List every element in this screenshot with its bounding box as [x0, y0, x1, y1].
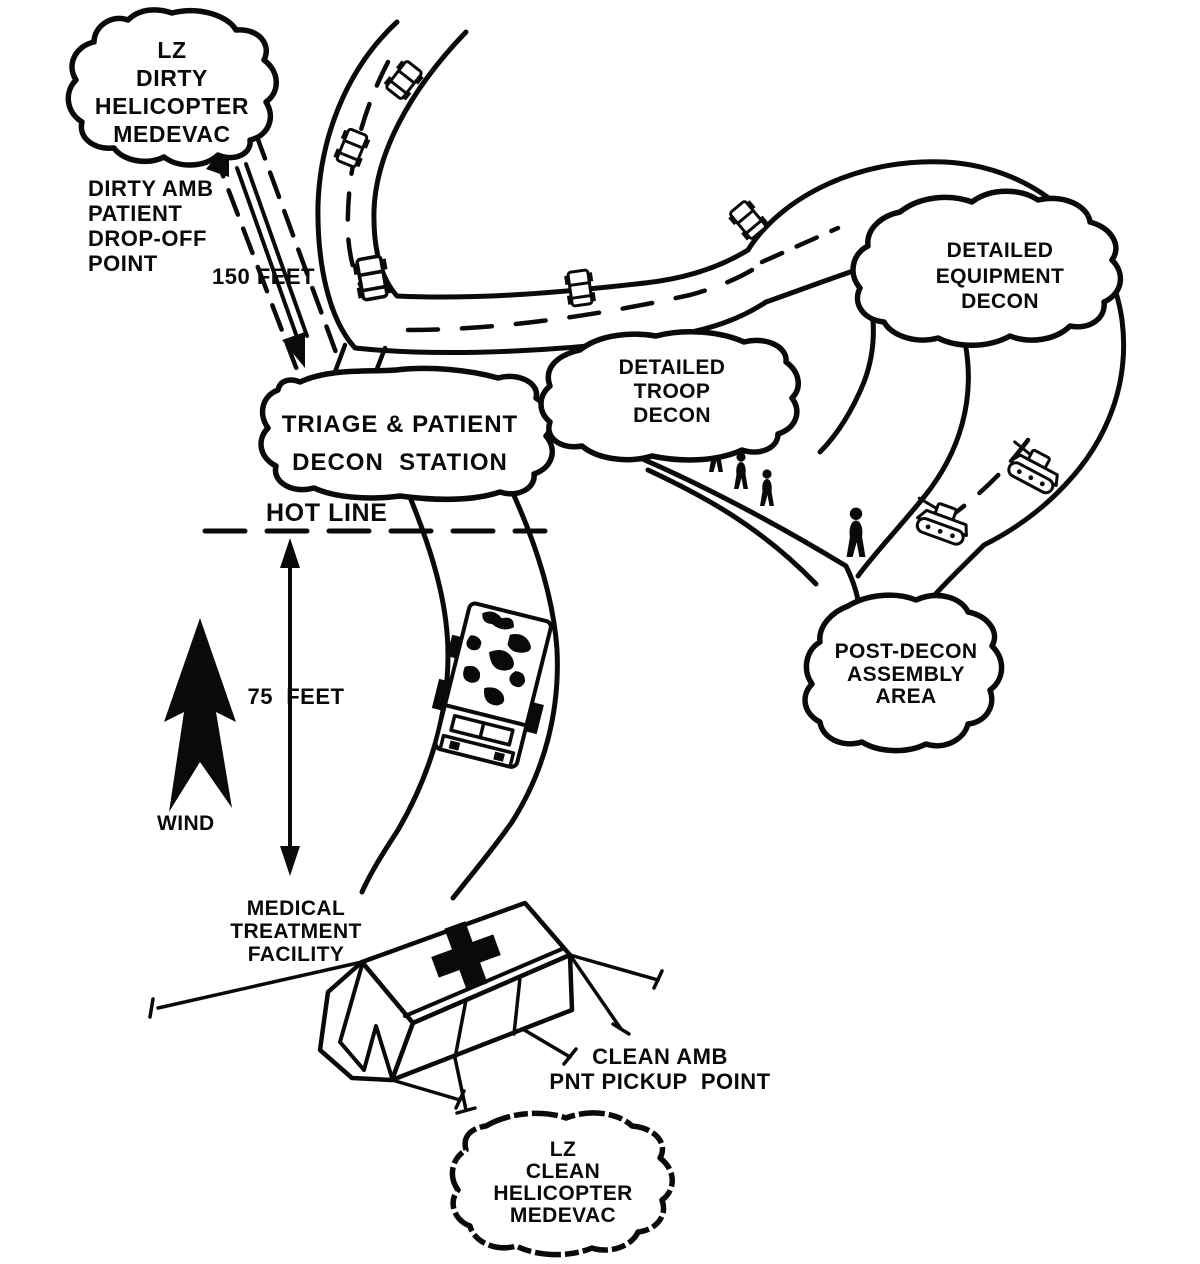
decon-station-diagram: LZ DIRTY HELICOPTER MEDEVAC TRIAGE & PAT…	[0, 0, 1200, 1264]
label-clean-amb-pickup: CLEAN AMB PNT PICKUP POINT	[549, 1044, 770, 1094]
cloud-lz-dirty-line3: HELICOPTER	[95, 93, 249, 119]
cloud-equipment-line2: EQUIPMENT	[936, 265, 1064, 288]
clean-amb-line1: CLEAN AMB	[592, 1044, 728, 1069]
cloud-lz-clean: LZ CLEAN HELICOPTER MEDEVAC	[452, 1113, 672, 1255]
dirty-road	[318, 22, 766, 382]
medical-treatment-facility-label: MEDICAL TREATMENT FACILITY	[230, 897, 362, 966]
cloud-triage-patient-decon: TRIAGE & PATIENT DECON STATION	[261, 368, 552, 499]
hot-line-label: HOT LINE	[266, 499, 387, 527]
cloud-lz-clean-line3: HELICOPTER	[493, 1182, 632, 1205]
cloud-postdecon-line3: AREA	[875, 685, 936, 708]
label-dirty-amb-drop-off: DIRTY AMB PATIENT DROP-OFF POINT	[88, 176, 214, 276]
cloud-detailed-equipment-decon: DETAILED EQUIPMENT DECON	[853, 191, 1120, 345]
cloud-triage-line2: DECON STATION	[292, 449, 508, 476]
cloud-postdecon-line1: POST-DECON	[835, 640, 978, 663]
dirty-amb-line1: DIRTY AMB	[88, 176, 214, 201]
cloud-detailed-troop-decon: DETAILED TROOP DECON	[541, 332, 798, 460]
wind-label: WIND	[157, 812, 215, 835]
cloud-lz-dirty-line2: DIRTY	[136, 65, 208, 91]
cloud-troop-line2: TROOP	[634, 380, 711, 403]
cloud-lz-dirty-line1: LZ	[157, 37, 186, 63]
mtf-line3: FACILITY	[248, 943, 345, 966]
cloud-troop-line3: DECON	[633, 404, 711, 427]
tanks-on-equipment-road	[909, 440, 1066, 547]
cloud-post-decon-assembly: POST-DECON ASSEMBLY AREA	[805, 595, 1002, 750]
cloud-lz-dirty: LZ DIRTY HELICOPTER MEDEVAC	[68, 10, 276, 165]
dirty-amb-line3: DROP-OFF	[88, 226, 207, 251]
cloud-lz-dirty-line4: MEDEVAC	[113, 121, 231, 147]
cloud-troop-line1: DETAILED	[619, 356, 726, 379]
dirty-amb-line2: PATIENT	[88, 201, 182, 226]
mtf-line2: TREATMENT	[230, 920, 362, 943]
cloud-equipment-line3: DECON	[961, 290, 1039, 313]
label-75-feet: 75 FEET	[248, 684, 345, 709]
troop-path	[612, 446, 858, 600]
clean-amb-line2: PNT PICKUP POINT	[549, 1069, 770, 1094]
cloud-triage-line1: TRIAGE & PATIENT	[282, 411, 518, 438]
cloud-lz-clean-line4: MEDEVAC	[510, 1204, 616, 1227]
cloud-equipment-line1: DETAILED	[947, 239, 1054, 262]
dirty-amb-line4: POINT	[88, 251, 158, 276]
cloud-postdecon-line2: ASSEMBLY	[847, 663, 965, 686]
cloud-lz-clean-line2: CLEAN	[526, 1160, 600, 1183]
wind-arrow	[164, 618, 236, 812]
cloud-lz-clean-line1: LZ	[550, 1138, 576, 1161]
mtf-line1: MEDICAL	[247, 897, 345, 920]
label-150-feet: 150 FEET	[212, 264, 315, 289]
